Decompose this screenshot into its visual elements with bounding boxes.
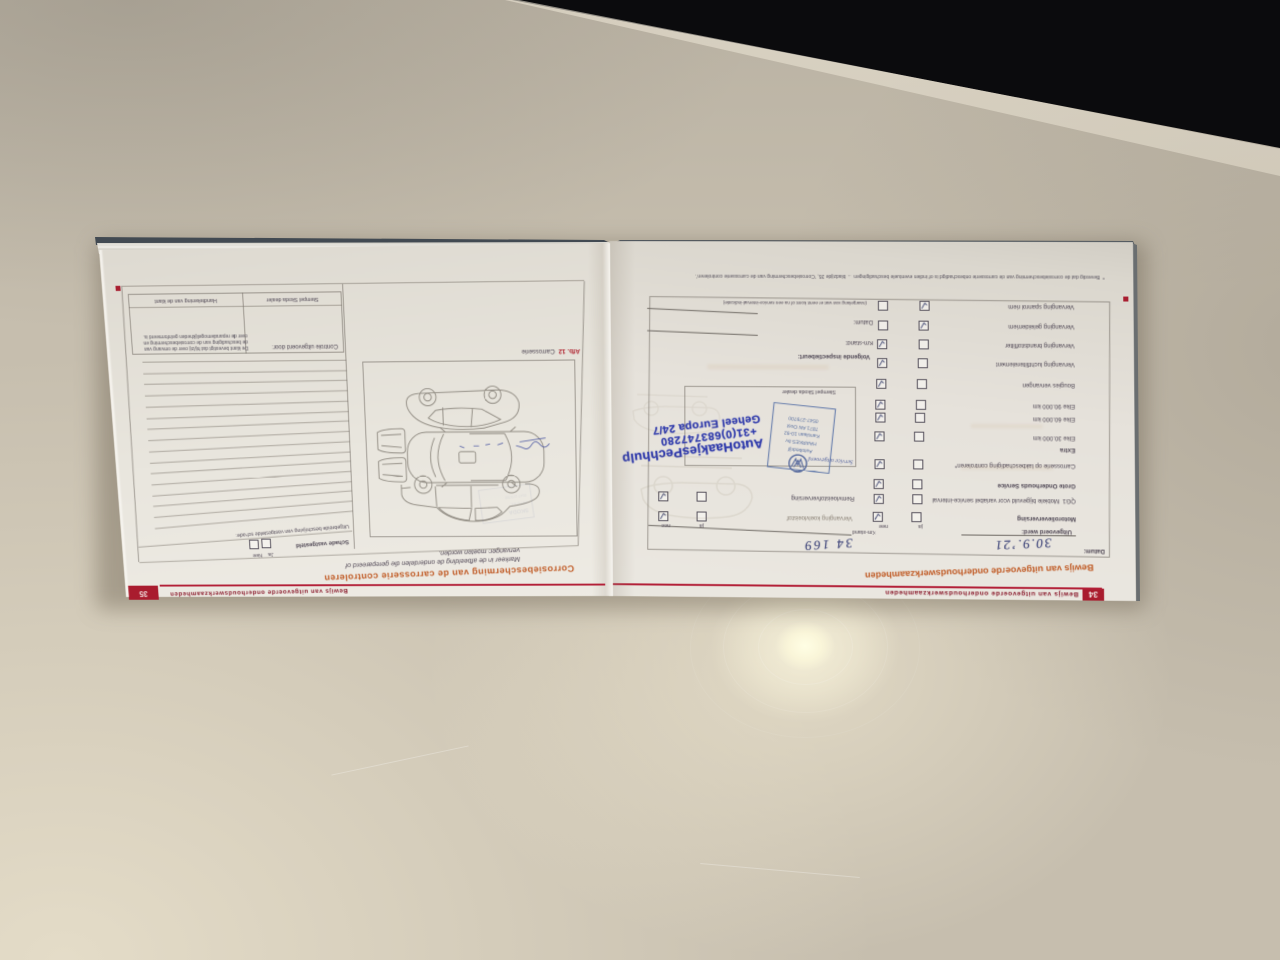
svg-text:SKODA: SKODA bbox=[508, 506, 528, 514]
svg-text:AUTO a.s.: AUTO a.s. bbox=[510, 500, 527, 506]
svg-text:0547-279700: 0547-279700 bbox=[505, 493, 527, 500]
